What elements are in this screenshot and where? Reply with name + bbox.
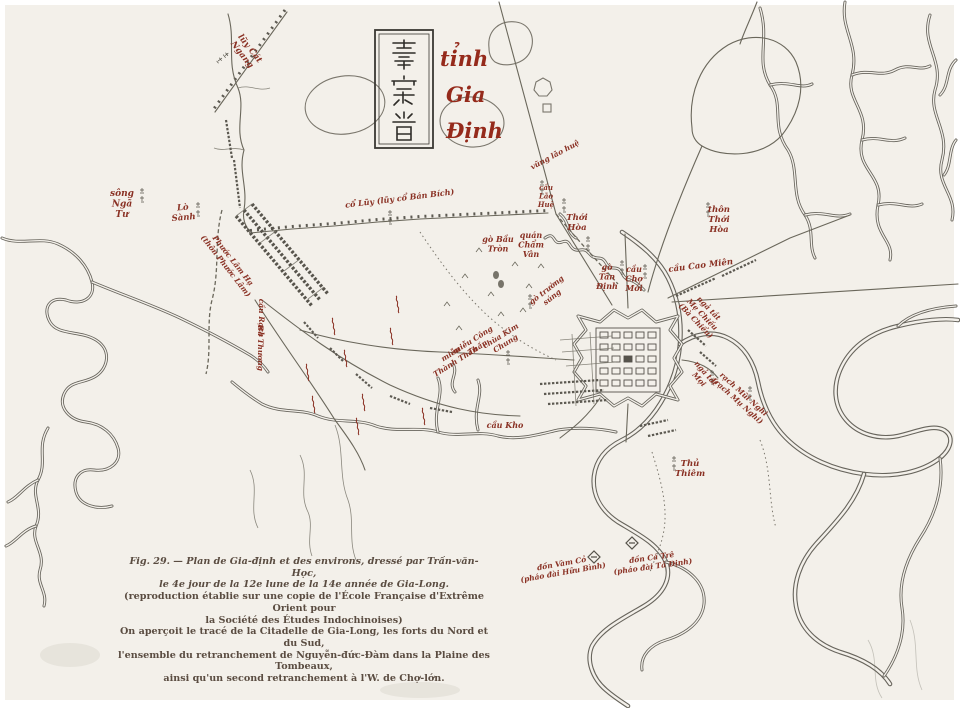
caption-line: Fig. 29. — Plan de Gia-định et des envir… [118,556,490,579]
caption-line: la Société des Études Indochinoises) [118,615,490,627]
go-truong-sung-label: gò trườngsúng [527,274,571,314]
quan-cham-van-label: quánChẩmVân [518,230,544,259]
phuoc-lam-ha-label: Phước Lâm Hạ(thôn Phước Lâm) [199,228,260,299]
cau-lao-hue-label: cầuLãoHuệ [537,183,555,209]
scanned-map-page: { "title": { "chinese": "嘉定省", "line1": … [0,0,960,708]
citadel-street-grid [600,332,656,386]
go-tan-dinh-label: gòTânĐịnh [595,262,618,291]
go-bau-tron-label: gò BầuTròn [482,234,514,254]
caption-line: On aperçoit le tracé de la Citadelle de … [118,626,490,649]
cau-cao-mien-label: cầu Cao Miên [668,256,734,275]
title-line-2: Gia [446,82,486,107]
luy-cat-ngang-label: lũy CátNgang [227,32,264,71]
thon-thoi-hoa-label: thônThớiHòa [708,204,730,235]
caption-line: le 4e jour de la 12e lune de la 14e anné… [118,579,490,591]
caption-line: ainsi qu'un second retranchement à l'W. … [118,673,490,685]
don-ca-tre-label: đồn Cá Trê(pháo đài Tả Định) [612,547,693,576]
thoi-hoa-label: ThớiHòa [566,212,587,233]
co-luy-ban-bich-label: cổ Lũy (lũy cổ Bán Bích) [345,186,455,209]
title-chinese-characters [392,40,416,140]
illegible-red-annotations [306,296,425,435]
figure-caption: Fig. 29. — Plan de Gia-định et des envir… [118,556,490,685]
lo-sanh-label: LòSành [170,201,196,224]
caption-line: (reproduction établie sur une copie de l… [118,591,490,614]
title-line-1: tỉnh [440,42,488,71]
thu-thiem-label: ThủThiêm [675,458,705,479]
caption-line: l'ensemble du retranchement de Nguyễn-đứ… [118,650,490,673]
cau-kho-label: cầu Kho [487,420,524,430]
title-line-3: Định [445,118,503,143]
marsh-outlines [301,22,552,150]
road-network [206,2,958,572]
song-nga-tu-label: sôngNgãTư [110,188,134,220]
tomb-plain-marks [444,248,544,330]
ba-thuong-label: Bà Thương [256,324,265,371]
title-cartouche: tỉnh Gia Định [375,30,503,148]
cau-cho-moi-label: cầuChợMới [624,264,644,293]
